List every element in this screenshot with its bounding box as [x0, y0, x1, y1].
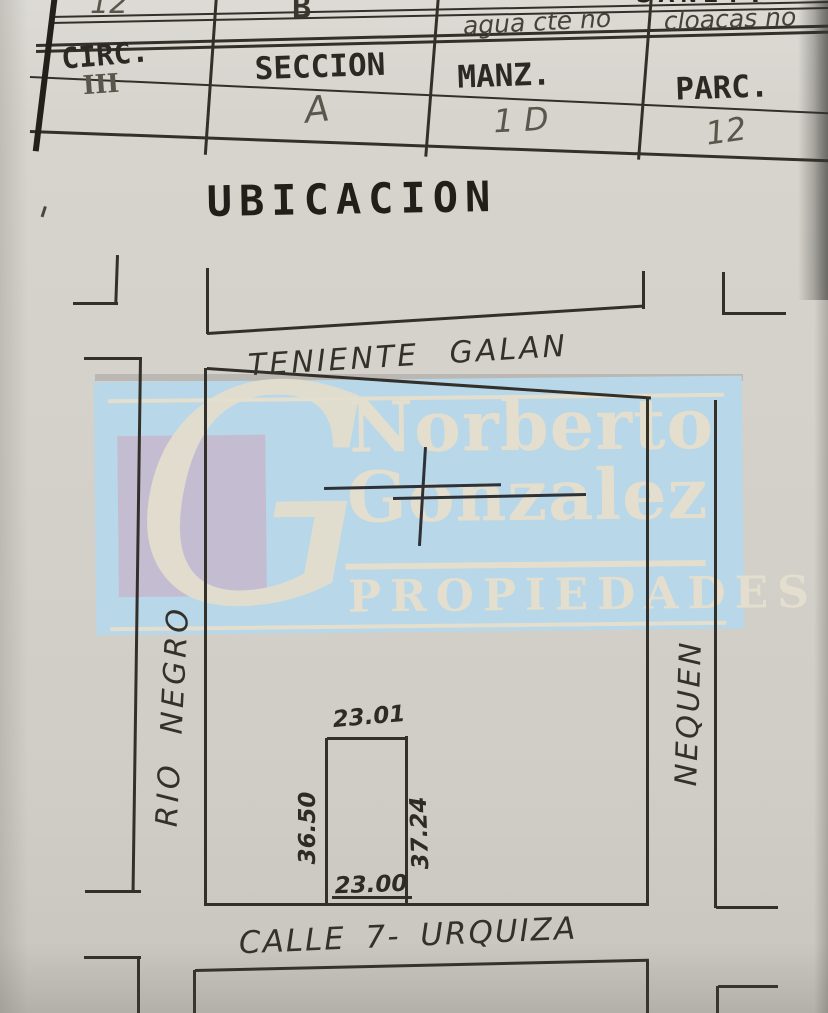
header-manz: MANZ. — [457, 56, 552, 95]
map-east-lower-corner-v — [716, 986, 719, 1013]
table-separator-col2 — [424, 0, 439, 157]
value-parc: 12 — [703, 109, 749, 152]
street-name-bottom: CALLE 7- URQUIZA — [238, 911, 578, 962]
parcel-dim-bottom: 23.00 — [334, 871, 408, 900]
table-separator-col1 — [204, 0, 218, 155]
map-ne-corner-h — [722, 312, 786, 315]
value-seccion: A — [303, 88, 332, 131]
map-block-bottom-h — [205, 903, 648, 906]
parcel-dim-right: 37.24 — [406, 796, 435, 870]
clipped-cell-seccion: B — [278, 0, 338, 22]
map-nw-corner-v — [114, 255, 118, 305]
parcel-top-h — [327, 737, 408, 740]
map-block-left-v — [204, 368, 207, 906]
scan-shadow-right-top — [798, 0, 828, 300]
scan-shadow-right — [814, 0, 828, 1013]
map-east-lower-corner-h — [718, 985, 778, 988]
map-nw-corner-h — [73, 302, 118, 305]
clipped-cell-circ: 12 — [78, 0, 148, 20]
map-east-street-line — [714, 400, 717, 908]
map-west-lower-corner-v — [137, 957, 140, 1013]
watermark-subtitle: PROPIEDADES — [348, 571, 818, 620]
parcel-dim-top: 23.01 — [332, 701, 407, 733]
map-block-right-v — [646, 398, 649, 906]
stray-ink-mark — [41, 206, 47, 217]
value-manz: 1 D — [492, 100, 549, 141]
map-north-block-bottom-h — [207, 304, 644, 334]
header-parc: PARC. — [675, 68, 770, 107]
scanned-cadastral-plan: G Norberto Gonzalez PROPIEDADES 12 B SAN… — [0, 0, 828, 1013]
map-west-lower-corner-h — [84, 956, 141, 959]
map-east-tick-h — [716, 906, 778, 909]
map-north-block-left-v — [206, 268, 209, 334]
clipped-circ-value: 12 — [90, 0, 128, 20]
table-separator-col3 — [637, 0, 652, 160]
parcel-dim-left: 36.50 — [295, 792, 321, 865]
map-galan-sw-corner-h — [84, 357, 142, 360]
service-note-cloacas: cloacas no — [663, 2, 796, 36]
map-north-block-right-v — [642, 271, 645, 309]
parcel-left-v — [325, 738, 328, 905]
value-circ: III — [82, 69, 121, 101]
header-seccion: SECCION — [254, 47, 386, 88]
map-west-tick-h — [85, 890, 141, 893]
page-title: UBICACION — [206, 172, 497, 226]
street-name-right: NEQUEN — [669, 639, 709, 787]
map-ne-corner-v — [722, 272, 725, 314]
map-south-block-top-h — [195, 959, 649, 972]
map-south-block-right-v — [646, 961, 649, 1013]
scan-shadow-left — [0, 0, 28, 1013]
clipped-seccion-value: B — [292, 0, 311, 22]
map-south-block-left-v — [193, 970, 196, 1013]
